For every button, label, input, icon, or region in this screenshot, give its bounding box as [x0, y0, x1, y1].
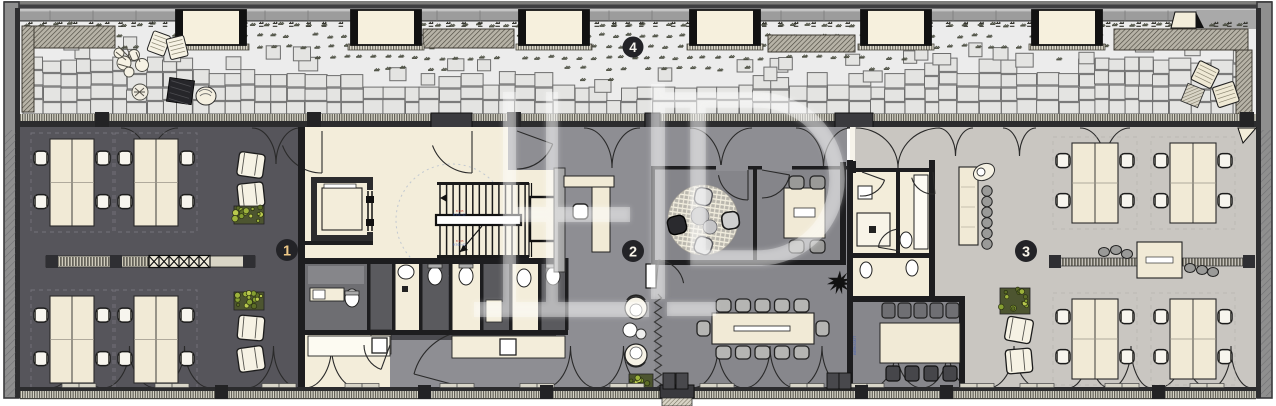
svg-text:4: 4 — [629, 40, 637, 55]
svg-text:2: 2 — [629, 245, 637, 261]
svg-text:3: 3 — [1022, 245, 1030, 261]
svg-text:B 3.05 +12: B 3.05 +12 — [453, 213, 466, 217]
svg-text:B 3.05: B 3.05 — [456, 209, 464, 213]
svg-text:B 3.05: B 3.05 — [456, 239, 464, 243]
svg-text:WERKSTATT: WERKSTATT — [853, 336, 857, 355]
svg-text:B 3.05 +12: B 3.05 +12 — [453, 243, 466, 247]
svg-text:1: 1 — [283, 244, 291, 260]
